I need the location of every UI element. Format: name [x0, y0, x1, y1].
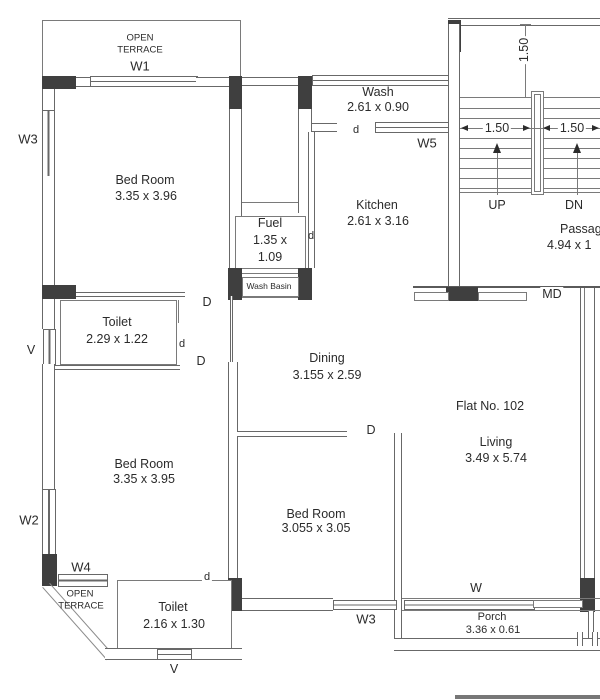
- window-label-v-mid: V: [27, 343, 35, 357]
- flat-number-label: Flat No. 102: [456, 399, 524, 413]
- up-arrow-head: [493, 143, 501, 153]
- wall: [42, 299, 55, 329]
- door-leaf: [533, 600, 583, 608]
- room-size-kitchen: 2.61 x 3.16: [347, 214, 409, 228]
- wall: [55, 365, 180, 370]
- dimension-label-vertical: 1.50: [517, 36, 531, 64]
- wall-line: [242, 297, 298, 298]
- wall-line: [584, 288, 585, 578]
- door-label-wash: d: [353, 124, 359, 136]
- room-size-toilet-bottom: 2.16 x 1.30: [143, 617, 205, 631]
- room-label-passage: Passage: [560, 222, 600, 236]
- stair-tread: [460, 168, 600, 169]
- door-label-bedroom-top: D: [202, 295, 211, 309]
- room-label-living: Living: [480, 435, 513, 449]
- window-w3-lower: [333, 600, 397, 610]
- room-size-dining: 3.155 x 2.59: [293, 368, 362, 382]
- wall: [42, 176, 55, 285]
- room-size-bedroom-bottom: 3.055 x 3.05: [282, 521, 351, 535]
- room-size-toilet-mid: 2.29 x 1.22: [86, 332, 148, 346]
- wall-line: [413, 286, 600, 288]
- window-w1: [90, 76, 198, 87]
- wall: [196, 77, 229, 87]
- dimension-label-left: 1.50: [483, 121, 511, 135]
- wall-post: [592, 632, 598, 646]
- room-label-porch: Porch: [478, 611, 507, 623]
- column: [42, 76, 76, 89]
- window-w-porch: [404, 600, 535, 610]
- stair-tread: [460, 188, 600, 189]
- room-size-bedroom-top: 3.35 x 3.96: [115, 189, 177, 203]
- window-w5: [375, 122, 452, 133]
- window-label-w-porch: W: [470, 581, 482, 595]
- room-label-terrace-top-2: TERRACE: [117, 45, 162, 56]
- wall: [228, 362, 238, 578]
- wall: [394, 638, 600, 651]
- wall: [580, 288, 595, 578]
- room-label-terrace-bottom-1: OPEN: [67, 589, 94, 600]
- door-label-bedroom-left: D: [196, 354, 205, 368]
- wall-line: [242, 273, 298, 274]
- room-label-terrace-bottom-2: TERRACE: [58, 601, 103, 612]
- window-label-w5: W5: [417, 136, 437, 151]
- window-label-w3-upper: W3: [18, 132, 38, 147]
- wall: [42, 364, 55, 489]
- wall: [312, 123, 337, 132]
- room-label-wash: Wash: [362, 85, 394, 99]
- dimension-arrow: [523, 125, 530, 131]
- window-label-w4: W4: [71, 560, 91, 575]
- room-size-bedroom-left: 3.35 x 3.95: [113, 472, 175, 486]
- wall: [237, 431, 347, 437]
- wall: [308, 132, 315, 268]
- floor-plan: OPEN TERRACE W1 W3 Bed Room 3.35 x 3.96 …: [0, 0, 600, 700]
- door-jamb: [178, 300, 179, 323]
- room-label-dining: Dining: [309, 351, 344, 365]
- dimension-arrow: [543, 125, 550, 131]
- column: [298, 76, 312, 109]
- stair-tread: [460, 108, 600, 109]
- dimension-label-right: 1.50: [558, 121, 586, 135]
- room-size-wash: 2.61 x 0.90: [347, 100, 409, 114]
- door-label-md: MD: [540, 287, 563, 301]
- window-label-w2: W2: [19, 513, 39, 528]
- stairs-label-up: UP: [488, 198, 505, 212]
- window-w3-upper: [42, 110, 55, 178]
- room-size-living: 3.49 x 5.74: [465, 451, 527, 465]
- door-label-toilet-mid: d: [179, 338, 185, 350]
- column: [229, 76, 242, 109]
- stair-tread: [460, 138, 600, 139]
- stairs-label-down: DN: [565, 198, 583, 212]
- column: [298, 268, 312, 300]
- stair-tread: [460, 118, 600, 119]
- room-label-toilet-bottom: Toilet: [158, 600, 187, 614]
- column: [446, 287, 478, 301]
- column: [42, 554, 57, 586]
- wall: [230, 296, 233, 362]
- window-label-w3-lower: W3: [356, 612, 376, 627]
- wall: [242, 77, 298, 86]
- wall: [448, 24, 460, 287]
- door-label-toilet-bottom: d: [202, 571, 212, 583]
- window-v-mid: [43, 329, 56, 366]
- door-leaf-md: [478, 292, 527, 301]
- room-size-fuel-1: 1.35 x: [253, 233, 287, 247]
- wall: [76, 77, 90, 87]
- room-label-bedroom-bottom: Bed Room: [286, 507, 345, 521]
- dimension-arrow: [592, 125, 599, 131]
- dimension-tick: [520, 97, 531, 98]
- dimension-arrow: [461, 125, 468, 131]
- stair-tread: [460, 178, 600, 179]
- door-leaf: [414, 292, 449, 301]
- room-label-kitchen: Kitchen: [356, 198, 398, 212]
- door-label-bedroom-bottom: D: [366, 423, 375, 437]
- room-size-passage: 4.94 x 1: [547, 238, 591, 252]
- room-label-bedroom-top: Bed Room: [115, 173, 174, 187]
- room-label-toilet-mid: Toilet: [102, 315, 131, 329]
- room-size-fuel-2: 1.09: [258, 250, 282, 264]
- wall-post: [577, 632, 583, 646]
- door-label-fuel: d: [308, 230, 314, 242]
- room-size-porch: 3.36 x 0.61: [466, 624, 520, 636]
- window-label-w1: W1: [130, 59, 150, 74]
- window-label-v-bottom: V: [170, 662, 178, 676]
- wall-line: [402, 598, 600, 599]
- fixture-label-wash-basin: Wash Basin: [246, 281, 291, 291]
- wall: [242, 598, 333, 611]
- down-arrow-head: [573, 143, 581, 153]
- wall: [76, 292, 185, 297]
- stair-tread: [460, 192, 600, 193]
- stair-tread: [460, 158, 600, 159]
- window-w2: [42, 489, 56, 556]
- toilet-bottom-outline: [117, 580, 232, 650]
- column: [42, 285, 76, 299]
- up-arrow-stem: [497, 152, 498, 195]
- room-label-bedroom-left: Bed Room: [114, 457, 173, 471]
- wall: [42, 89, 55, 110]
- dimension-tick: [520, 24, 531, 25]
- stair-rail-inner: [534, 94, 541, 192]
- window-w4: [58, 574, 108, 587]
- shaft-bottom-line: [242, 202, 298, 203]
- window-v-bottom: [157, 649, 192, 660]
- wall: [394, 433, 402, 644]
- partial-line: [455, 695, 600, 699]
- down-arrow-stem: [577, 152, 578, 195]
- room-label-terrace-top-1: OPEN: [127, 33, 154, 44]
- room-label-fuel: Fuel: [258, 216, 282, 230]
